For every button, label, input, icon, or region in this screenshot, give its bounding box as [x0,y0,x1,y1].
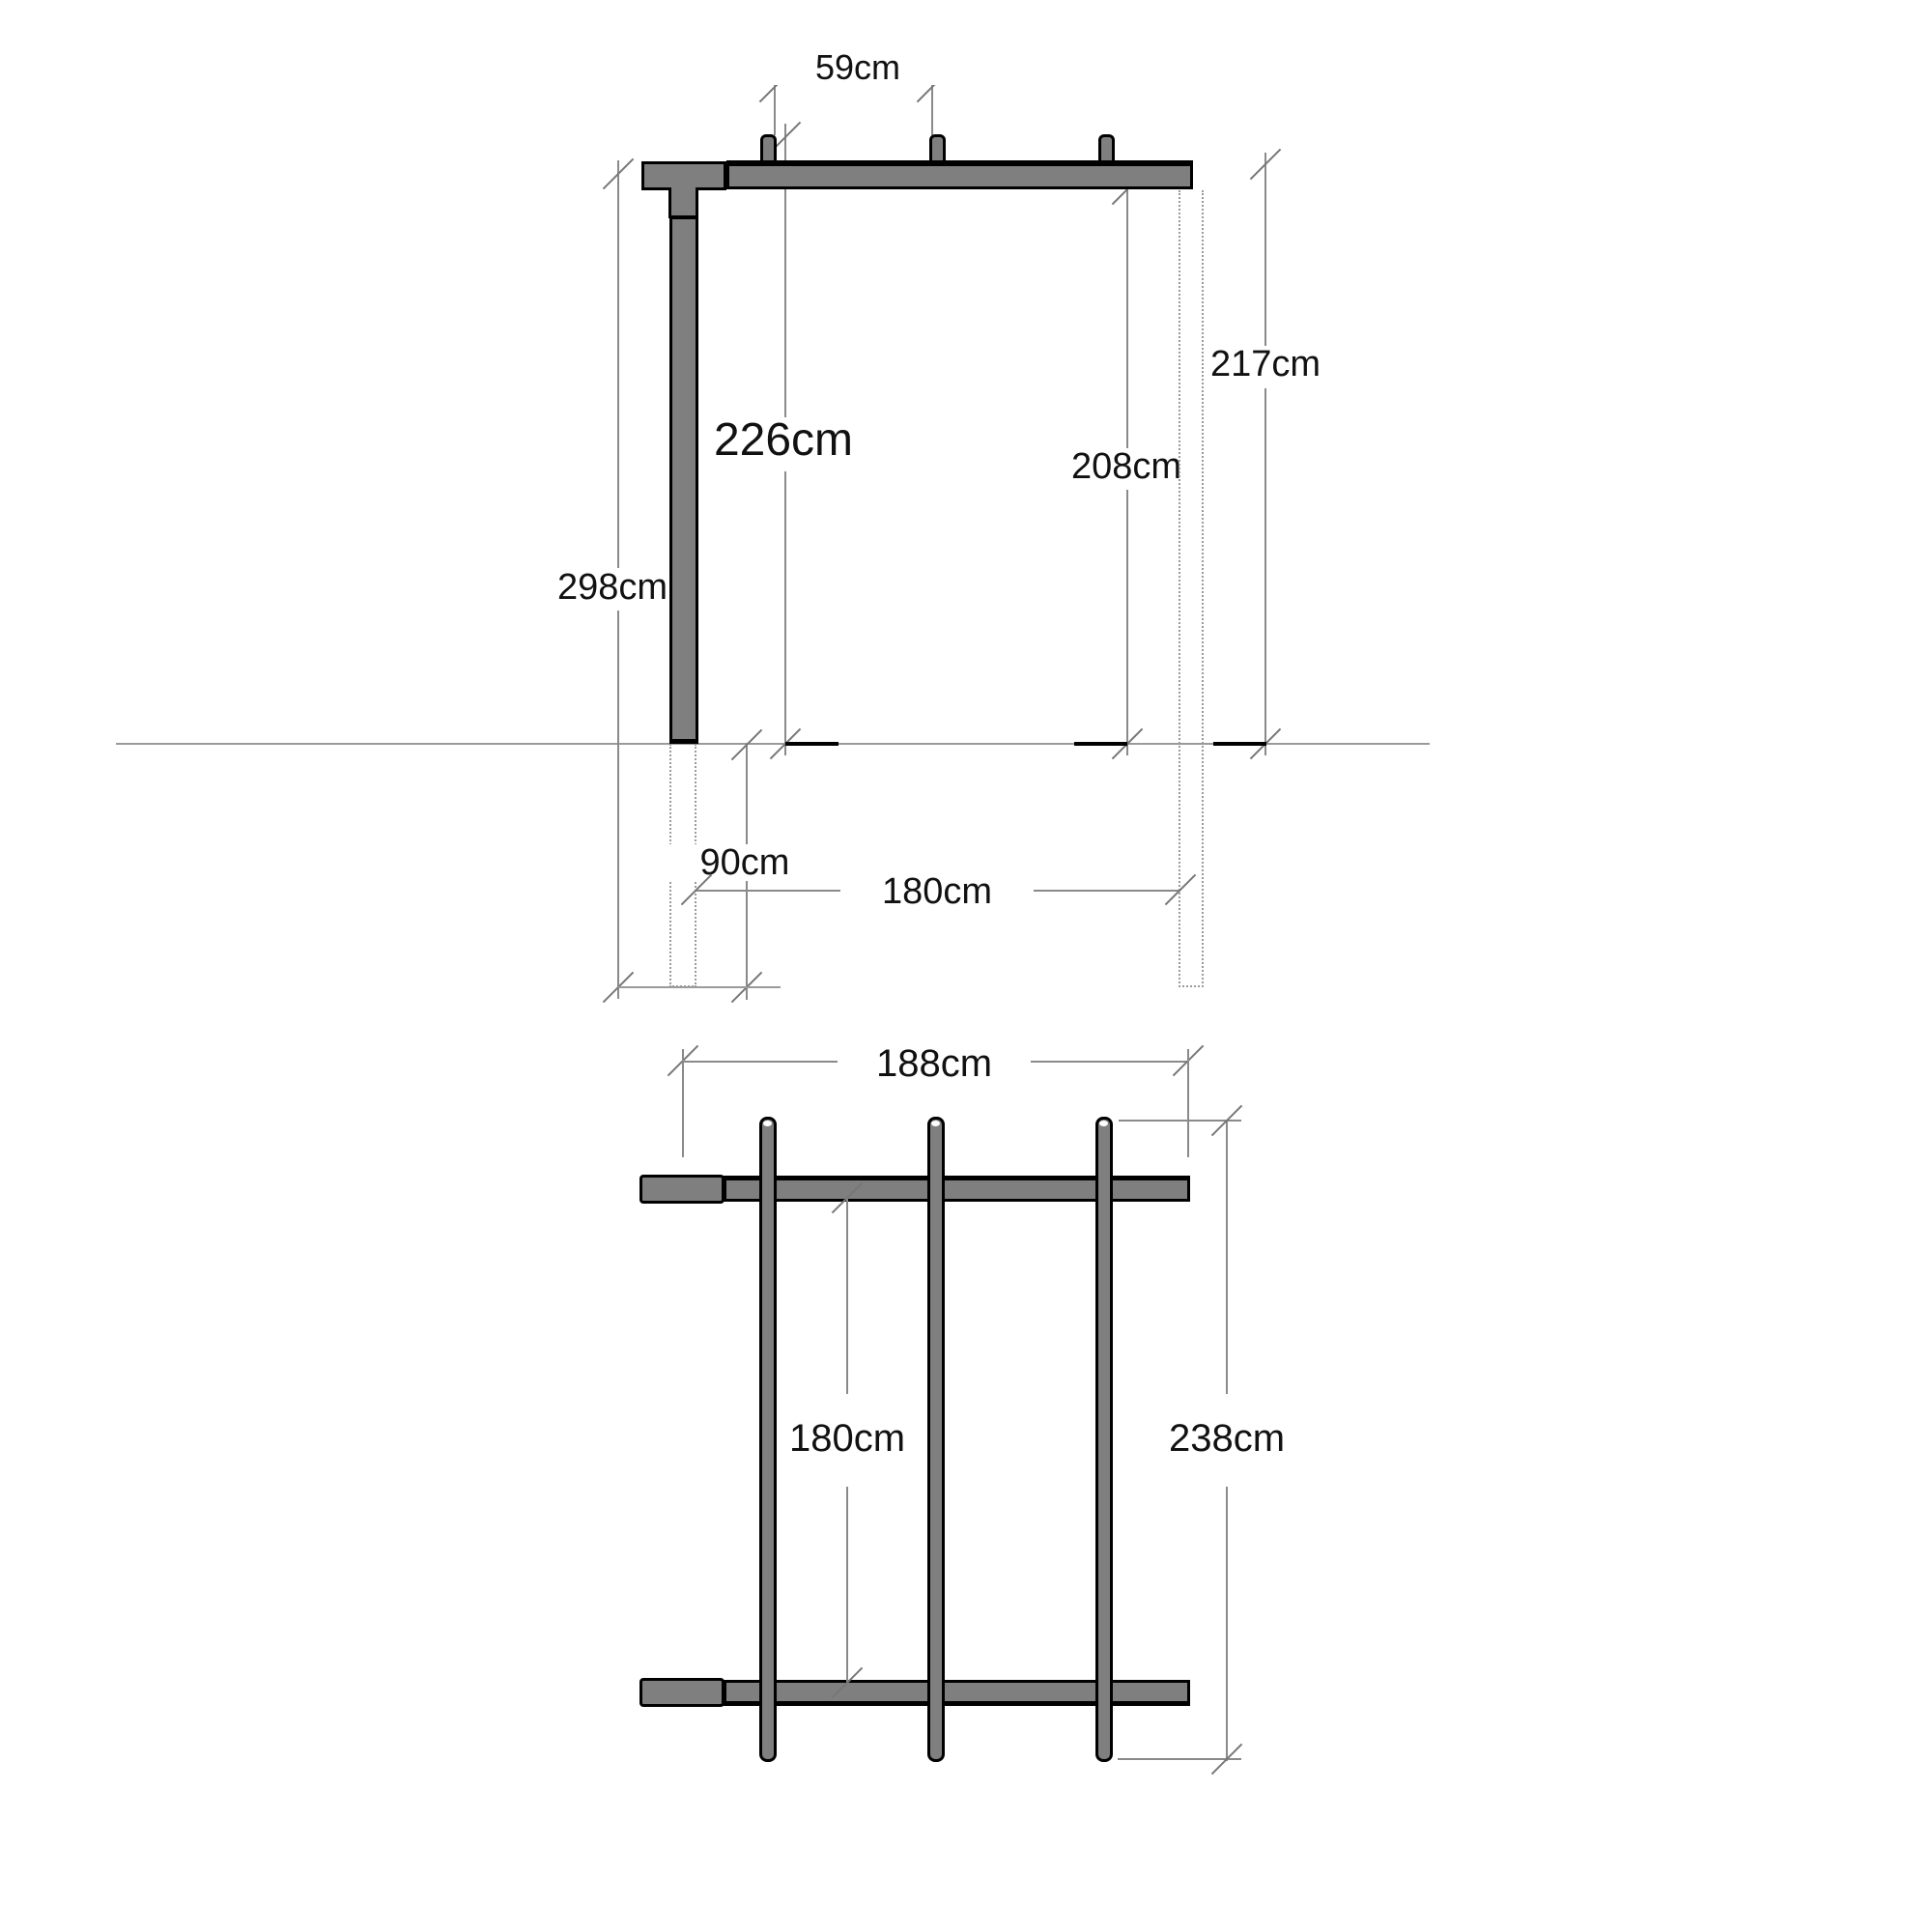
dim-188-ext-right [1187,1049,1189,1157]
ground-stub-3 [1213,742,1266,746]
post [669,216,698,744]
dim-208-line-lower [1126,490,1128,755]
dim-label-180-plan: 180cm [751,1419,944,1458]
dim-label-188: 188cm [838,1044,1031,1083]
dim-180e-line-right [1012,890,1180,892]
plan-rafter-3 [1095,1117,1113,1762]
plan-rafter-2 [927,1117,945,1762]
dim-90-baseline [618,986,781,988]
plan-bottom-beam-cap [639,1678,724,1707]
dim-188-ext-left [682,1049,684,1157]
ground-stub-2 [1074,742,1127,746]
header-beam [726,160,1193,189]
dim-180e-line-left [696,890,863,892]
dim-label-238: 238cm [1130,1419,1323,1458]
dim-188-line-right [1006,1061,1188,1063]
dim-217-line-upper [1264,153,1266,348]
plan-bottom-beam [724,1680,1190,1706]
dim-217-line-lower [1264,388,1266,755]
dim-180p-line-upper [846,1198,848,1394]
dim-238-line-lower [1226,1487,1228,1761]
dim-238-line-upper [1226,1121,1228,1394]
dim-188-line-left [683,1061,862,1063]
hidden-far-post-edge-right [1202,190,1204,987]
plan-rafter-1 [759,1117,777,1762]
hidden-far-post-bottom [1179,985,1204,987]
dim-label-226: 226cm [687,417,880,464]
dim-label-180-elevation: 180cm [840,873,1034,910]
dim-208-line-upper [1126,187,1128,451]
post-connector-neck [668,187,698,218]
hidden-far-post-edge-left [1179,190,1180,987]
plan-top-beam-cap [639,1175,724,1204]
dim-label-208: 208cm [1030,448,1223,485]
dim-label-90: 90cm [648,844,841,881]
dim-label-217: 217cm [1169,346,1362,383]
dim-226-line-lower [784,471,786,755]
plan-top-beam [724,1176,1190,1202]
technical-drawing-canvas: 59cm 298cm 226cm 208cm 217cm 90cm 180cm [0,0,1932,1932]
dim-180p-line-lower [846,1487,848,1684]
ground-stub-1 [785,742,838,746]
dim-label-59: 59cm [761,50,954,85]
plan-rafter-3-end-grain [1099,1121,1108,1126]
plan-rafter-1-end-grain [763,1121,772,1126]
dim-238-ext-bottom [1118,1758,1241,1760]
beam-end-cap [641,161,726,190]
dim-298-line-upper [617,160,619,568]
plan-rafter-2-end-grain [931,1121,940,1126]
dim-298-line-lower [617,611,619,999]
